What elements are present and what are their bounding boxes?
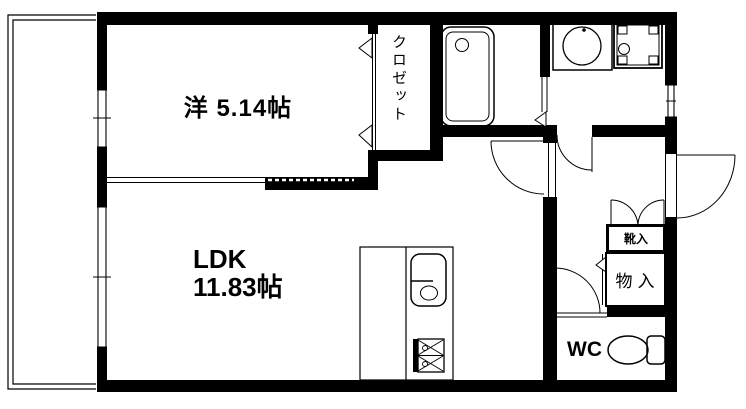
bathtub-icon <box>441 27 494 126</box>
sliding-partition <box>107 178 266 183</box>
ldk-label: LDK 11.83帖 <box>193 245 283 301</box>
balcony <box>8 15 96 389</box>
closet-folding-door-icon <box>359 33 376 150</box>
bathroom-folding-door-icon <box>535 77 547 127</box>
window-west-bedroom-icon <box>93 90 111 147</box>
window-east-washroom-icon <box>665 85 677 117</box>
ldk-name: LDK <box>193 245 283 273</box>
washbasin-icon <box>553 23 612 70</box>
walls <box>97 12 677 392</box>
kitchen-sink-icon <box>411 254 446 306</box>
washing-machine-icon <box>614 22 662 68</box>
storage-box: 物入 <box>605 252 666 307</box>
kitchen-counter <box>360 247 453 380</box>
washroom-door-icon <box>557 135 592 172</box>
storage-label: 物入 <box>616 267 660 292</box>
closet-label: クロゼット <box>388 34 409 154</box>
wc-door-icon <box>550 268 607 317</box>
toilet-icon <box>608 336 665 364</box>
entrance-door-icon <box>666 154 736 219</box>
window-west-ldk-icon <box>93 207 111 347</box>
ldk-door-icon <box>491 141 556 197</box>
wc-label: WC <box>567 338 602 362</box>
floor-plan-drawing <box>0 0 746 409</box>
shoe-cabinet-label: 靴入 <box>624 230 648 247</box>
stove-icon <box>413 339 444 372</box>
ldk-size: 11.83帖 <box>193 273 283 301</box>
shoe-cabinet-box: 靴入 <box>606 224 666 253</box>
floor-plan: 洋 5.14帖 LDK 11.83帖 クロゼット 靴入 物入 WC <box>0 0 746 409</box>
western-room-label: 洋 5.14帖 <box>120 88 356 123</box>
shoe-cabinet-doors-icon <box>611 200 664 227</box>
